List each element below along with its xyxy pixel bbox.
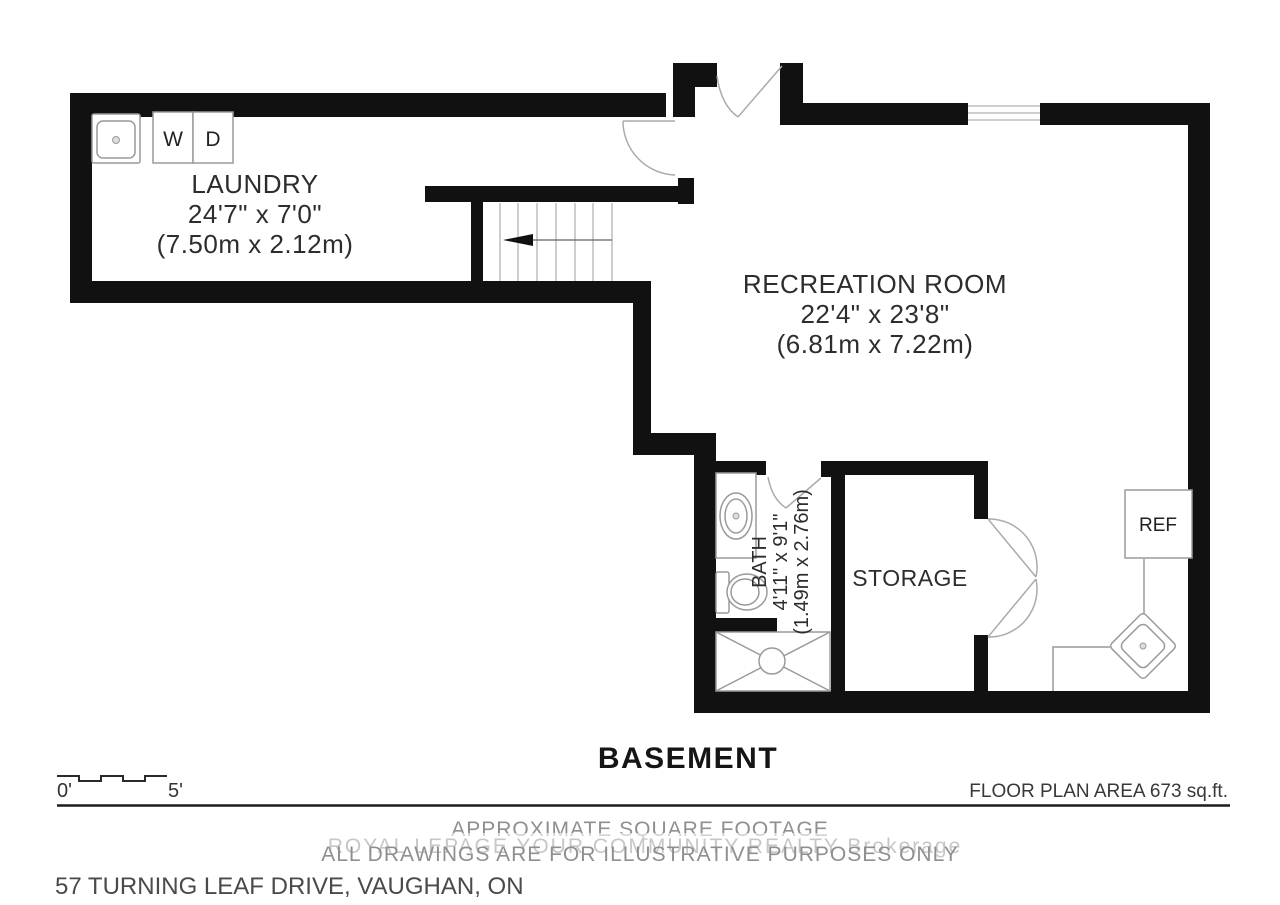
corner-counter [1053, 559, 1177, 691]
entry-door-swing-arc [717, 76, 738, 117]
wall-storage-east-bottom [974, 635, 988, 691]
floor-plan-area-note: FLOOR PLAN AREA 673 sq.ft. [969, 781, 1228, 802]
wall-entry-right-jamb [780, 63, 803, 125]
wall-bottom [698, 691, 1210, 713]
washer-label: W [163, 128, 183, 151]
wall-storage-east-top [974, 461, 988, 519]
basement-floor-plan: W D REF [0, 0, 1280, 905]
bath-dims-metric: (1.49m x 2.76m) [791, 489, 813, 635]
wall-storage-west [831, 461, 845, 691]
bath-dims-imperial: 4'11" x 9'1" [770, 513, 792, 610]
room-labels: LAUNDRY 24'7" x 7'0" (7.50m x 2.12m) REC… [157, 169, 1007, 635]
washer-dryer: W D [153, 112, 233, 163]
wall-entry-left-stub [695, 63, 717, 87]
wall-entry-left-jamb [673, 63, 695, 117]
laundry-name: LAUNDRY [191, 169, 318, 199]
bath-door-swing-arc [768, 477, 786, 508]
wall-stair-top [425, 186, 678, 202]
wall-step-horizontal [633, 433, 716, 455]
plan-title: BASEMENT [598, 742, 778, 775]
wall-rec-top-left [803, 103, 968, 125]
scale-bar: 0' 5' [57, 776, 183, 802]
wall-right [1188, 103, 1210, 713]
wall-laundry-bottom [70, 281, 651, 303]
scale-bar-line [57, 776, 167, 781]
storage-name: STORAGE [852, 565, 968, 591]
shower [716, 632, 830, 691]
bath-name: BATH [749, 536, 771, 588]
wall-rec-top-right [1040, 103, 1210, 125]
refrigerator: REF [1125, 490, 1192, 558]
wall-left [70, 93, 92, 303]
laundry-sink [92, 114, 140, 163]
footer: BASEMENT 0' 5' FLOOR PLAN AREA 673 sq.ft… [55, 742, 1230, 900]
vanity-drain-icon [733, 513, 739, 519]
shower-drain [759, 648, 785, 674]
laundry-sink-drain-icon [113, 137, 120, 144]
recreation-dims-metric: (6.81m x 7.22m) [777, 329, 974, 359]
scale-five-label: 5' [168, 780, 183, 802]
window-top-right [968, 103, 1040, 125]
wall-bath-halfwall [716, 618, 777, 632]
disclaimer-illustrative: ALL DRAWINGS ARE FOR ILLUSTRATIVE PURPOS… [321, 843, 958, 866]
wall-stair-jamb [678, 178, 694, 204]
storage-door-upper-leaf [988, 519, 1036, 577]
wall-storage-top [843, 461, 974, 475]
counter-edge [1053, 647, 1110, 691]
floor-plan-page: W D REF [0, 0, 1280, 905]
storage-door-lower-leaf [988, 579, 1036, 637]
entry-door-leaf [738, 66, 782, 117]
wall-rec-west [633, 281, 651, 433]
hall-door-swing-arc [623, 121, 675, 175]
property-address: 57 TURNING LEAF DRIVE, VAUGHAN, ON [55, 873, 524, 900]
wall-stair-divider [471, 202, 483, 281]
recreation-dims-imperial: 22'4" x 23'8" [800, 299, 949, 329]
laundry-dims-metric: (7.50m x 2.12m) [157, 229, 354, 259]
scale-zero-label: 0' [57, 780, 72, 802]
laundry-dims-imperial: 24'7" x 7'0" [188, 199, 322, 229]
dryer-label: D [205, 128, 220, 151]
bath-label-block: BATH 4'11" x 9'1" (1.49m x 2.76m) [749, 489, 813, 635]
recreation-label-block: RECREATION ROOM 22'4" x 23'8" (6.81m x 7… [743, 269, 1007, 359]
laundry-label-block: LAUNDRY 24'7" x 7'0" (7.50m x 2.12m) [157, 169, 354, 259]
staircase [500, 203, 612, 281]
wall-bath-west [694, 433, 716, 713]
recreation-name: RECREATION ROOM [743, 269, 1007, 299]
corner-bar-sink [1109, 612, 1177, 680]
refrigerator-label: REF [1139, 515, 1177, 536]
